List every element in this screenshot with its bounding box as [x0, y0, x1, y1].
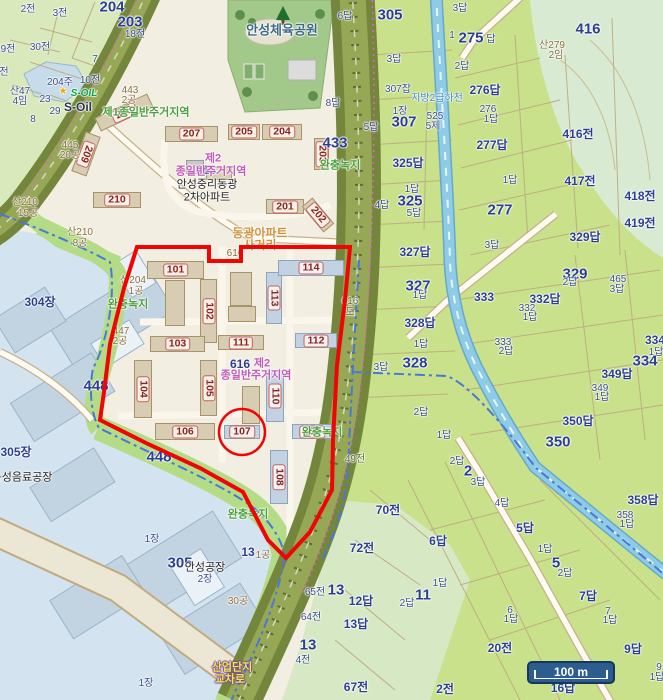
terrain-layer [0, 0, 663, 700]
park-court [288, 60, 316, 80]
map[interactable]: 2082092102072052042032012021011021031041… [0, 0, 663, 700]
scale-bar: 100 m [527, 661, 615, 684]
park-court [244, 64, 253, 79]
park-court [255, 64, 264, 79]
scale-bar-label: 100 m [529, 665, 613, 679]
